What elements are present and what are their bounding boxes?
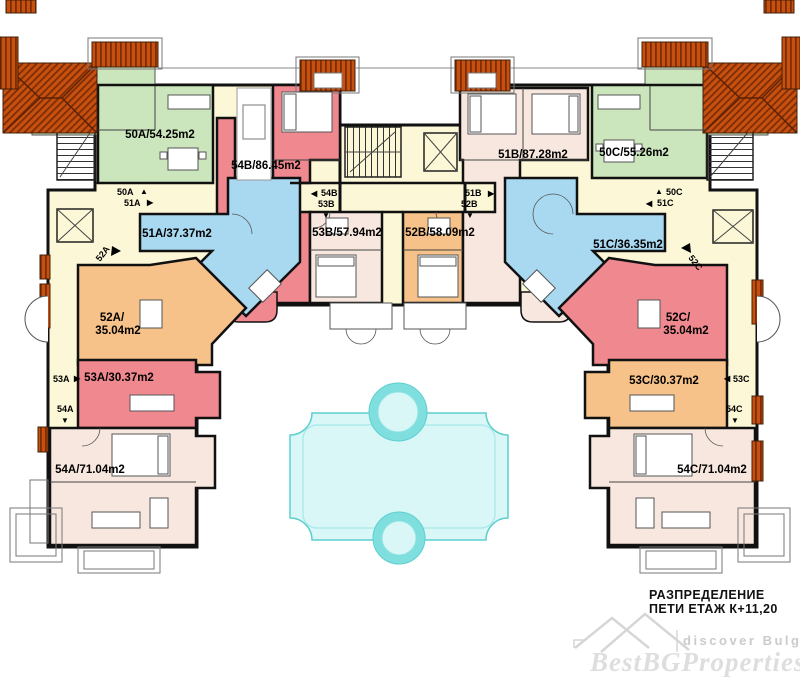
edge-roof-top-left <box>6 0 36 13</box>
balcony-53b <box>330 303 392 329</box>
entry-marker-53b: 53B <box>318 199 335 209</box>
entry-marker-53a: 53A <box>53 374 70 384</box>
unit-53c-area <box>585 360 727 428</box>
edge-roof-w1 <box>40 255 50 279</box>
entry-arrow-54c: ▼ <box>731 416 739 425</box>
unit-51b-label: 51B/87.28m2 <box>498 149 568 161</box>
bay-window-east <box>757 296 780 342</box>
entry-marker-52b: 52B <box>461 199 478 209</box>
balcony-roof-left <box>92 42 158 67</box>
floor-plan-canvas: 50A/54.25m2 54B/86.45m2 51B/87.28m2 50C/… <box>0 0 800 682</box>
unit-50a-label: 50A/54.25m2 <box>125 129 195 141</box>
unit-51c-label: 51C/36.35m2 <box>593 239 663 251</box>
entry-marker-51c: 51C <box>657 198 674 208</box>
floor-plan-image: 50A/54.25m2 54B/86.45m2 51B/87.28m2 50C/… <box>0 0 800 682</box>
skylight-left <box>314 73 342 88</box>
entry-arrow-54a: ▼ <box>61 416 69 425</box>
terrace-w-small <box>30 480 48 543</box>
unit-52c-label-line1: 52C/ <box>666 312 691 324</box>
furniture-sofa-50a <box>168 95 210 109</box>
unit-54b-label: 54B/86.45m2 <box>231 160 301 172</box>
entry-arrow-52b: ▼ <box>466 211 474 220</box>
furniture-table-52c <box>638 300 660 328</box>
edge-roof-e3 <box>752 441 763 481</box>
edge-roof-w3 <box>38 427 48 452</box>
unit-52b-label: 52B/58.09m2 <box>405 227 475 239</box>
furniture-table-52a <box>140 300 162 328</box>
unit-54c-label: 54C/71.04m2 <box>677 464 747 476</box>
entry-marker-54c: 54C <box>726 404 743 414</box>
edge-roof-e2 <box>752 396 763 424</box>
jacuzzi-top <box>378 392 418 432</box>
title-line2: ПЕТИ ЕТАЖ К+11,20 <box>649 602 778 616</box>
furniture-bed-52b <box>418 255 458 297</box>
title-line1: РАЗПРЕДЕЛЕНИЕ <box>649 588 765 602</box>
edge-roof-top-right <box>764 0 794 13</box>
unit-52a-label-line1: 52A/ <box>100 312 125 324</box>
entry-arrow-54b: ◀ <box>310 189 318 198</box>
entry-arrow-51b: ▶ <box>487 189 495 198</box>
edge-roof-nw <box>0 37 18 89</box>
watermark-caption: discover Bulgaria <box>683 633 800 648</box>
unit-50c-label: 50C/55.26m2 <box>599 147 669 159</box>
furniture-bed-51b-1 <box>468 94 516 134</box>
pool <box>290 383 508 564</box>
unit-52a-label-line2: 35.04m2 <box>95 325 140 337</box>
entry-marker-51b: 51B <box>465 188 482 198</box>
balcony-roof-right <box>642 42 708 67</box>
entry-marker-51a: 51A <box>124 198 141 208</box>
furniture-bed-54b <box>282 92 332 132</box>
jacuzzi-bottom <box>382 521 416 555</box>
balcony-52b <box>404 303 466 329</box>
entry-arrow-53a: ▶ <box>73 374 81 383</box>
entry-arrow-53b: ▼ <box>322 211 330 220</box>
furniture-sofa-53a <box>130 395 174 411</box>
unit-53a-area <box>78 360 220 428</box>
entry-marker-50c: 50C <box>666 187 683 197</box>
title-block: РАЗПРЕДЕЛЕНИЕ ПЕТИ ЕТАЖ К+11,20 <box>649 588 778 616</box>
entry-arrow-51a: ▶ <box>146 198 154 207</box>
unit-51a-label: 51A/37.37m2 <box>142 228 212 240</box>
entry-marker-54b: 54B <box>321 188 338 198</box>
furniture-bed-53b <box>316 255 356 297</box>
entry-arrow-50c: ▲ <box>655 187 663 196</box>
bay-window-west <box>25 296 48 342</box>
unit-52c-label-line2: 35.04m2 <box>663 325 708 337</box>
furniture-bed-51b-2 <box>532 94 580 134</box>
edge-roof-ne <box>782 37 800 89</box>
entry-marker-50a: 50A <box>117 187 134 197</box>
watermark: discover Bulgaria BestBGProperties <box>574 614 800 677</box>
entry-arrow-51c: ◀ <box>645 199 653 208</box>
bay-arc-52b <box>420 329 450 344</box>
entry-marker-53c: 53C <box>733 374 750 384</box>
unit-54a-label: 54A/71.04m2 <box>55 464 125 476</box>
unit-53a-label: 53A/30.37m2 <box>84 372 154 384</box>
furniture-sofa-53c <box>630 395 674 411</box>
unit-53c-label: 53C/30.37m2 <box>629 375 699 387</box>
unit-53b-label: 53B/57.94m2 <box>312 227 382 239</box>
entry-arrow-53c: ◀ <box>723 374 731 383</box>
bay-arc-53b <box>346 329 376 344</box>
watermark-brand: BestBGProperties <box>589 647 800 677</box>
furniture-sofa-50c <box>598 95 640 109</box>
entry-marker-54a: 54A <box>57 404 74 414</box>
skylight-right <box>468 73 496 88</box>
entry-arrow-50a: ▲ <box>140 187 148 196</box>
